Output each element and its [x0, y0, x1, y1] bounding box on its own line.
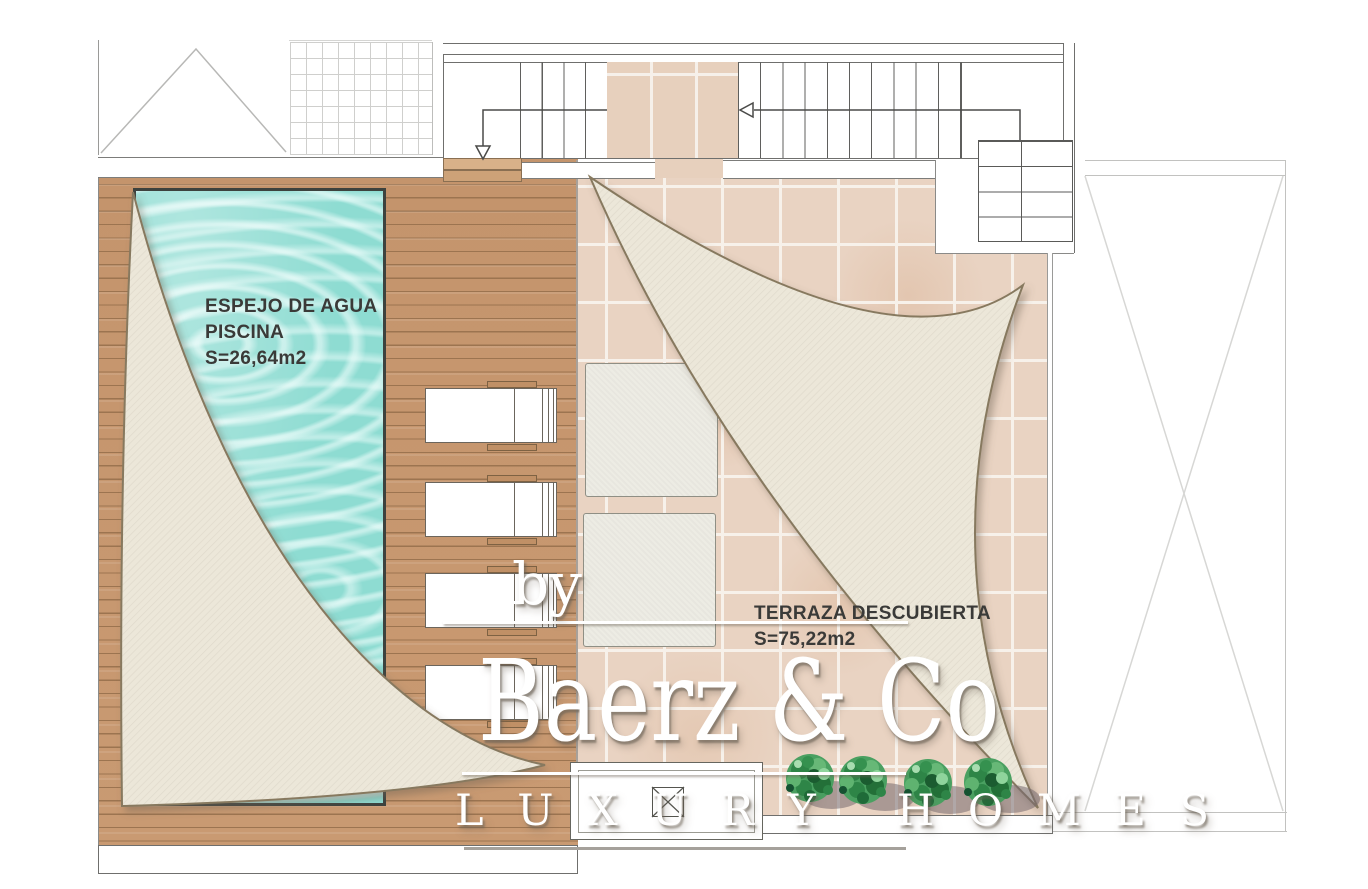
ottoman-square	[583, 513, 716, 647]
service-grid-unit	[978, 140, 1073, 242]
void-diagonal	[1085, 176, 1283, 811]
watermark-by: by	[507, 550, 587, 618]
pool-label-line1: ESPEJO DE AGUA	[205, 294, 377, 320]
stair-terrace-connection	[655, 158, 723, 178]
glass-grid-room	[290, 42, 433, 155]
ottoman-square	[585, 363, 718, 497]
pool-water	[133, 188, 386, 806]
skylight-cross-room	[98, 40, 289, 155]
watermark-tagline: L U X U R Y H O M E S	[455, 786, 915, 836]
floor-plan: ESPEJO DE AGUA PISCINA S=26,64m2 TERRAZA…	[0, 0, 1368, 889]
watermark-brand: Baerz & Co	[478, 643, 878, 761]
deck-step	[443, 158, 522, 170]
side-table	[487, 475, 537, 482]
sun-lounger	[425, 482, 557, 537]
terrace-right-wall	[1047, 253, 1053, 815]
watermark-divider-line	[464, 847, 906, 850]
side-table	[487, 444, 537, 451]
deck-step	[443, 170, 522, 182]
wall-band-deck	[98, 157, 443, 178]
void-top-line	[1085, 175, 1285, 176]
side-table	[487, 381, 537, 388]
pool-area-value: S=26,64m2	[205, 346, 377, 372]
stair-flight-left	[520, 62, 608, 158]
side-table	[487, 629, 537, 636]
void-diagonal	[1085, 176, 1283, 811]
stair-flight-right	[738, 62, 962, 158]
stair-landing	[607, 62, 738, 158]
wall-band-mid	[522, 162, 655, 179]
pool-label: ESPEJO DE AGUA PISCINA S=26,64m2	[205, 294, 377, 372]
void-top-line	[1085, 160, 1285, 161]
wall-band-terrace	[723, 160, 935, 179]
void-right-line	[1285, 160, 1286, 831]
top-wall	[443, 43, 1073, 55]
pool-label-line2: PISCINA	[205, 320, 377, 346]
sun-lounger	[425, 388, 557, 443]
side-table	[487, 538, 537, 545]
watermark-divider-line	[443, 621, 908, 624]
watermark-divider-line	[462, 772, 906, 775]
